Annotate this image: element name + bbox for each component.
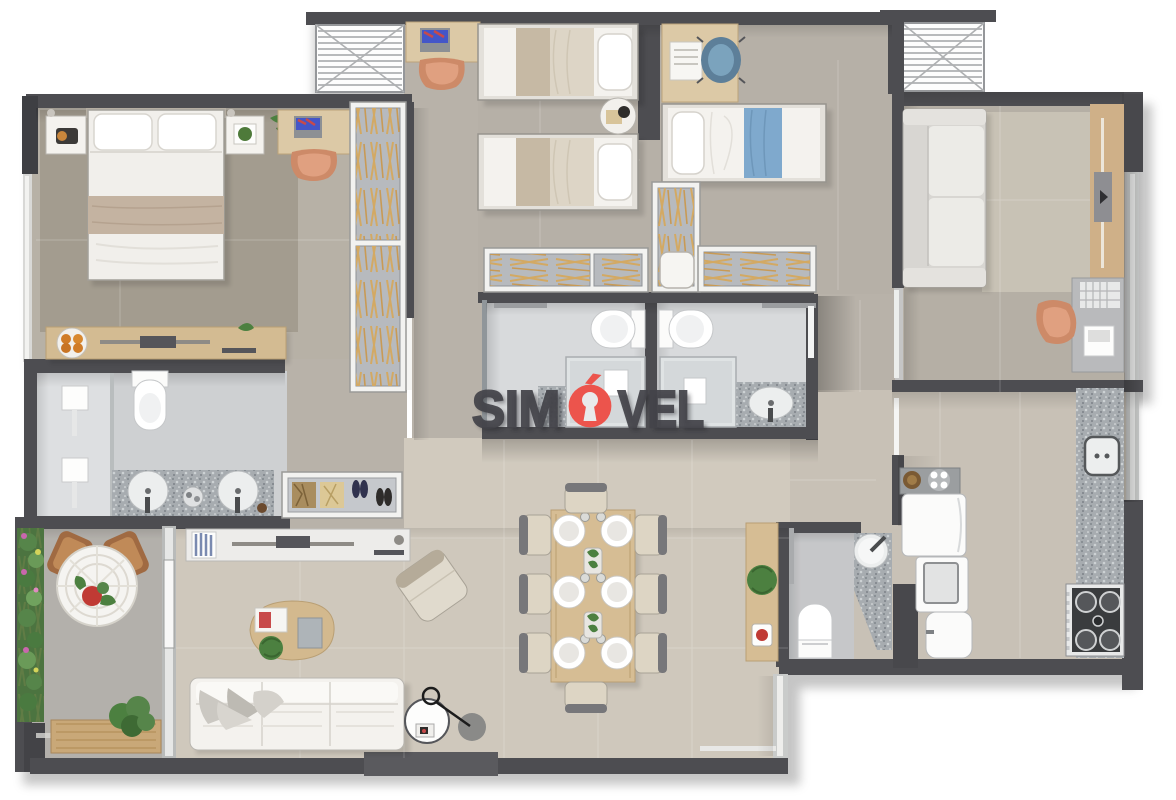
svg-text:SIM: SIM — [472, 381, 560, 439]
svg-text:VEL: VEL — [618, 381, 704, 439]
